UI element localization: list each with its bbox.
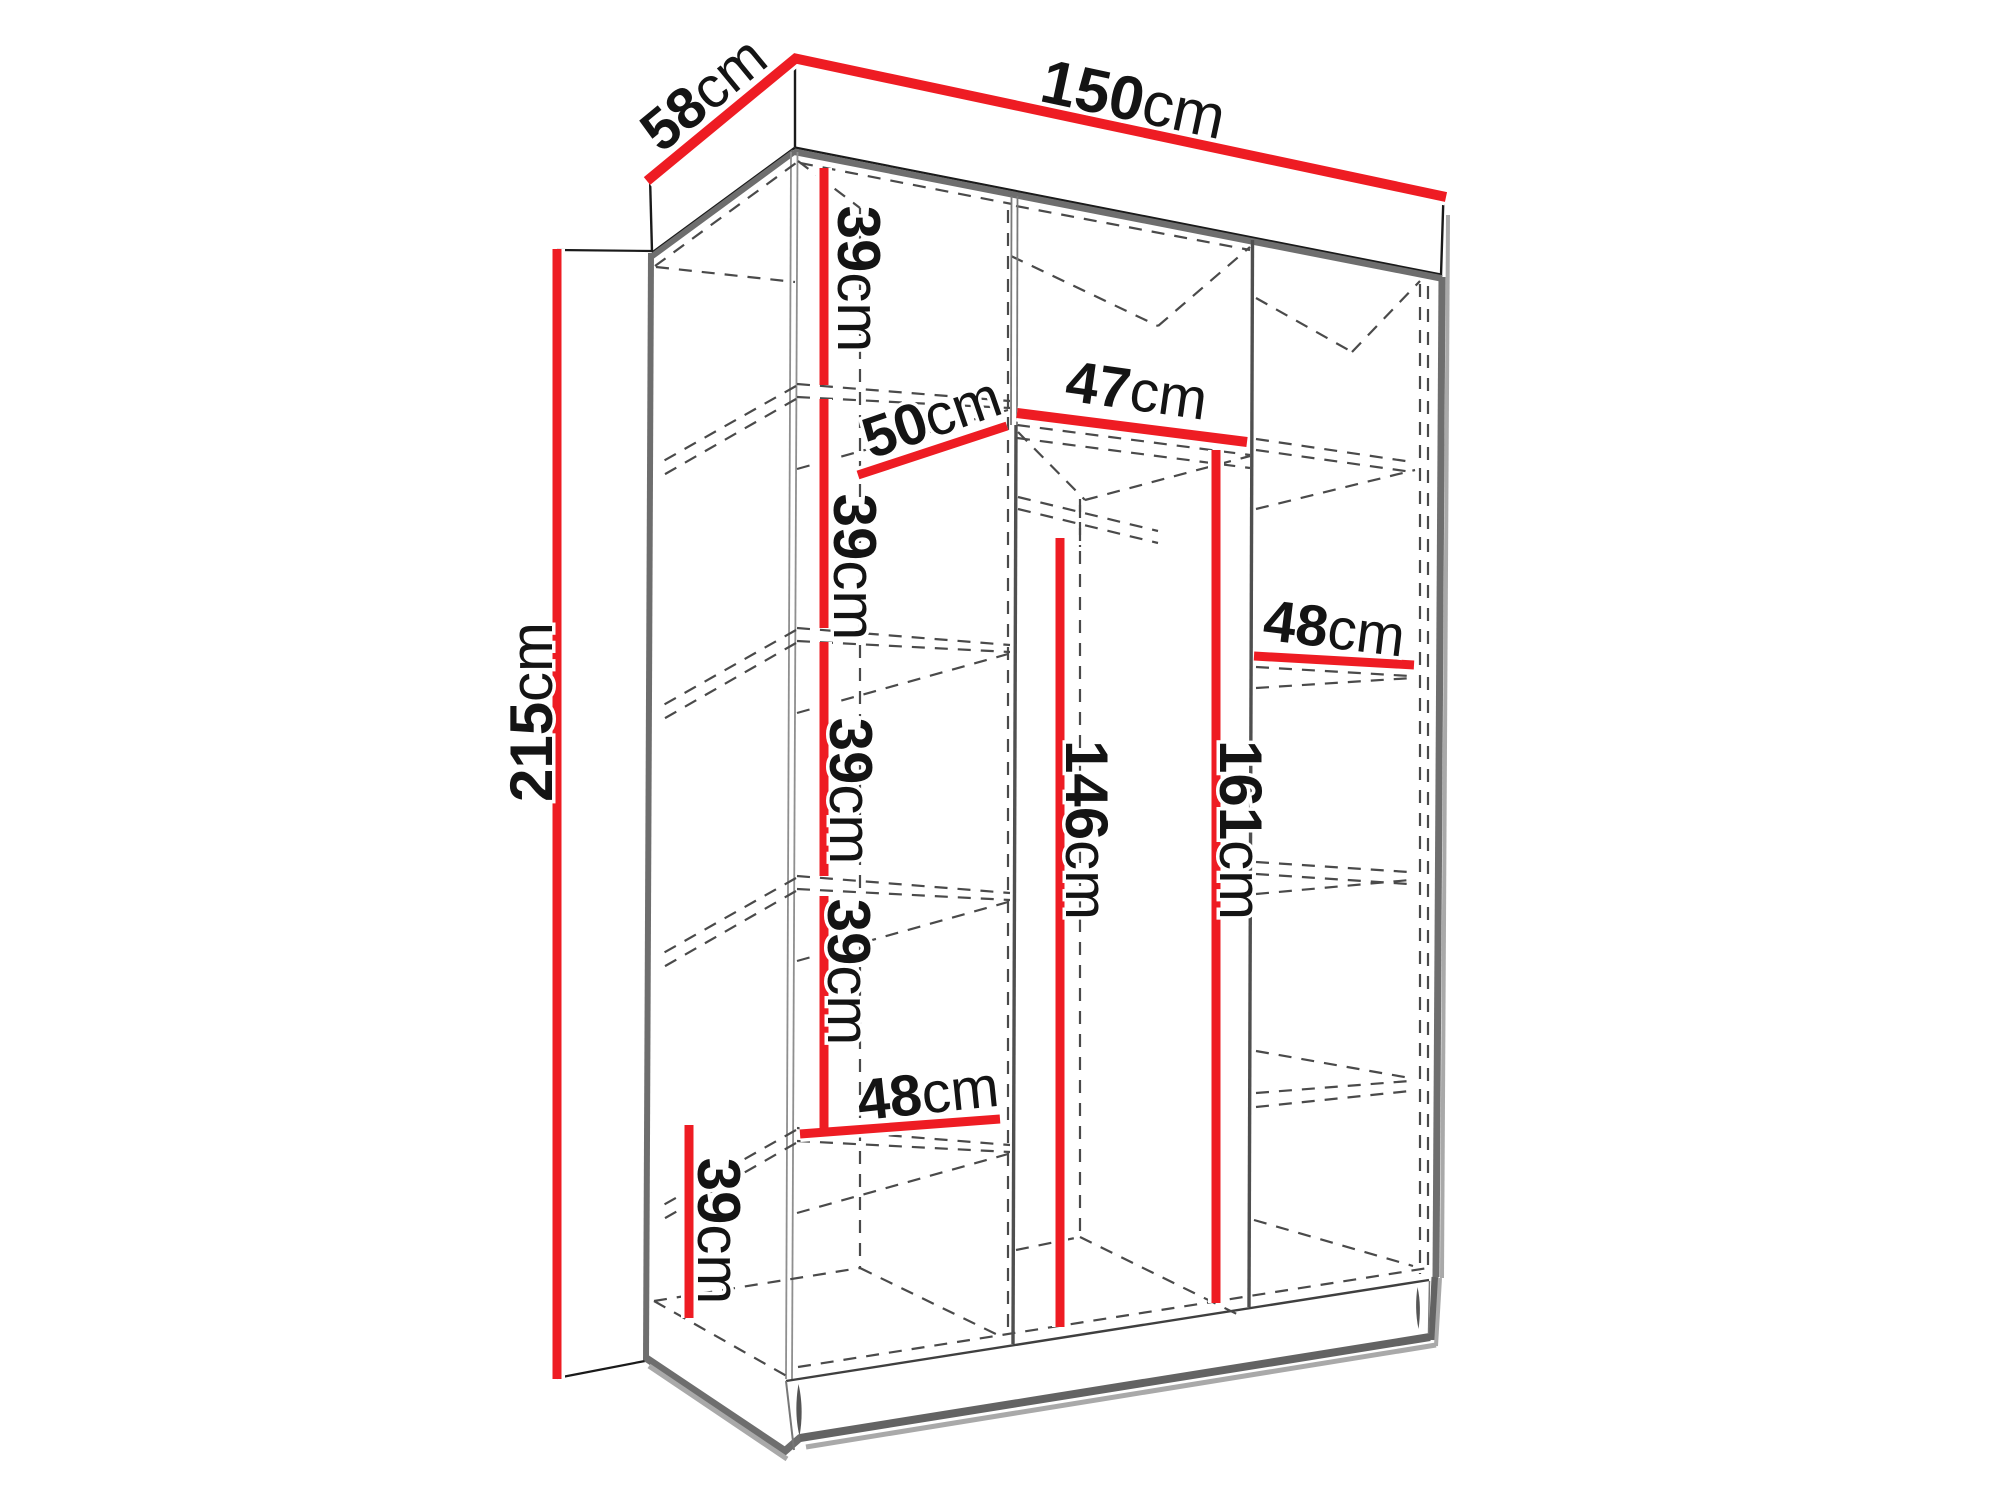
svg-text:39cm: 39cm xyxy=(817,718,884,865)
svg-text:39cm: 39cm xyxy=(825,206,892,353)
svg-text:161cm: 161cm xyxy=(1207,740,1274,920)
svg-text:146cm: 146cm xyxy=(1053,740,1120,920)
svg-text:39cm: 39cm xyxy=(815,899,882,1046)
svg-text:215cm: 215cm xyxy=(498,622,565,802)
svg-text:39cm: 39cm xyxy=(685,1158,752,1305)
svg-text:39cm: 39cm xyxy=(821,494,888,641)
